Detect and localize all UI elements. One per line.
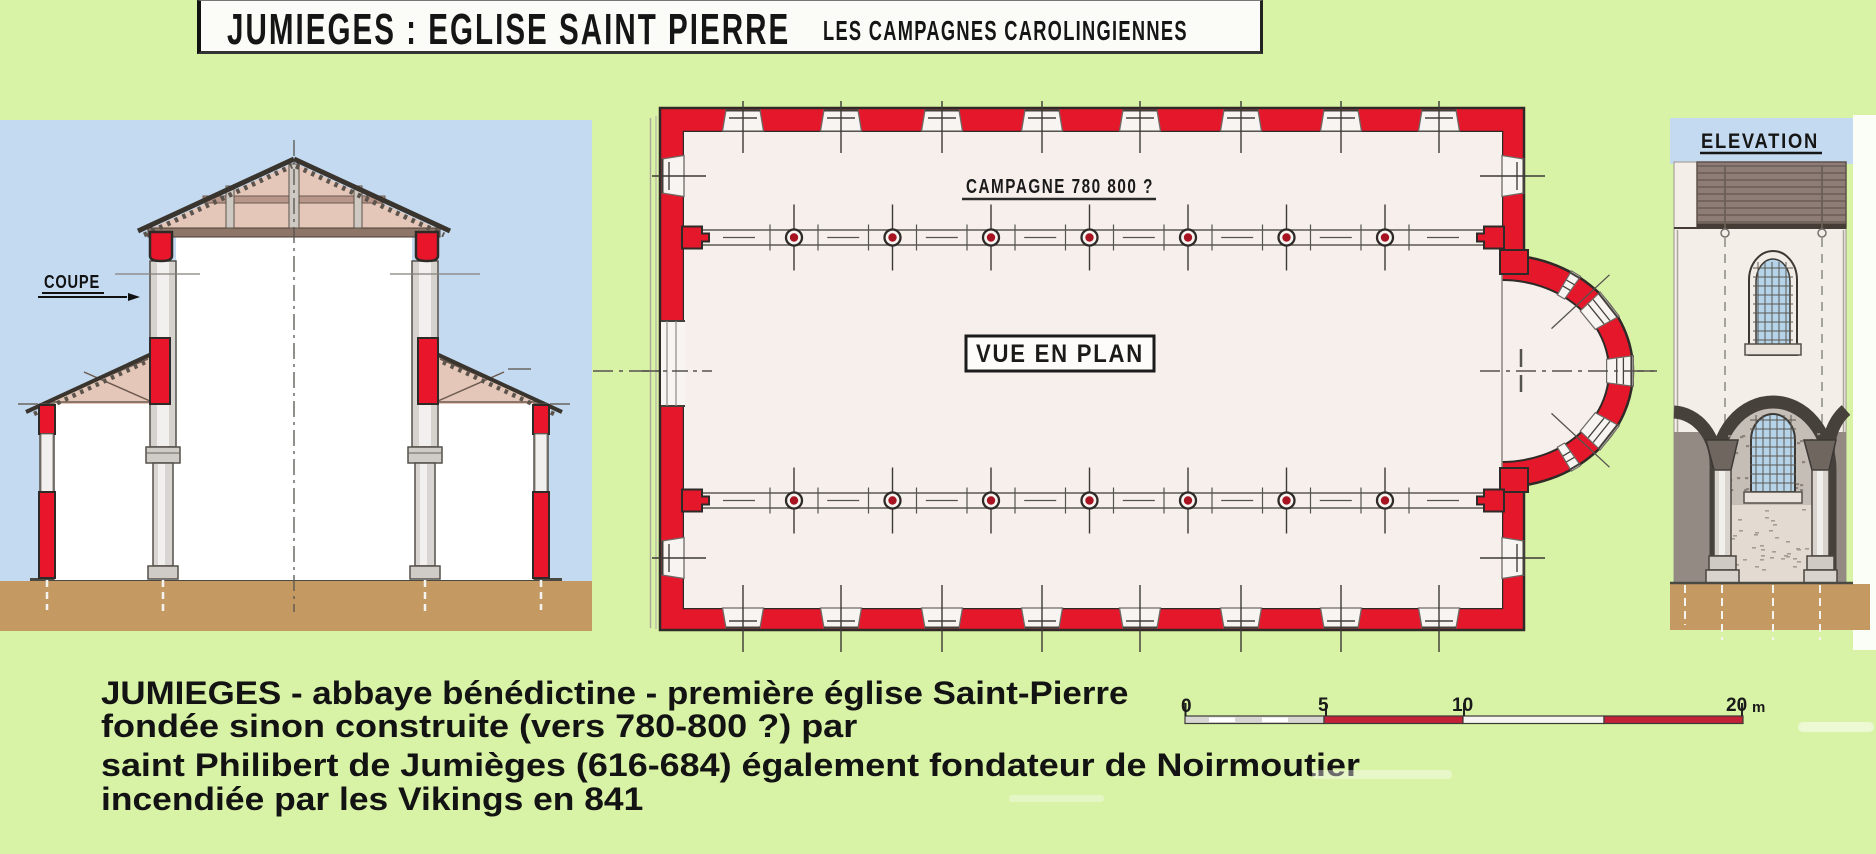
svg-text:20: 20 bbox=[1726, 695, 1747, 716]
svg-text:ELEVATION: ELEVATION bbox=[1701, 130, 1819, 153]
svg-text:COUPE: COUPE bbox=[44, 272, 100, 292]
svg-text:m: m bbox=[1752, 699, 1765, 716]
svg-text:10: 10 bbox=[1452, 695, 1473, 716]
svg-text:VUE EN PLAN: VUE EN PLAN bbox=[976, 340, 1144, 368]
svg-text:CAMPAGNE 780 800 ?: CAMPAGNE 780 800 ? bbox=[966, 176, 1154, 198]
svg-text:0: 0 bbox=[1181, 696, 1192, 717]
svg-text:5: 5 bbox=[1318, 695, 1329, 716]
